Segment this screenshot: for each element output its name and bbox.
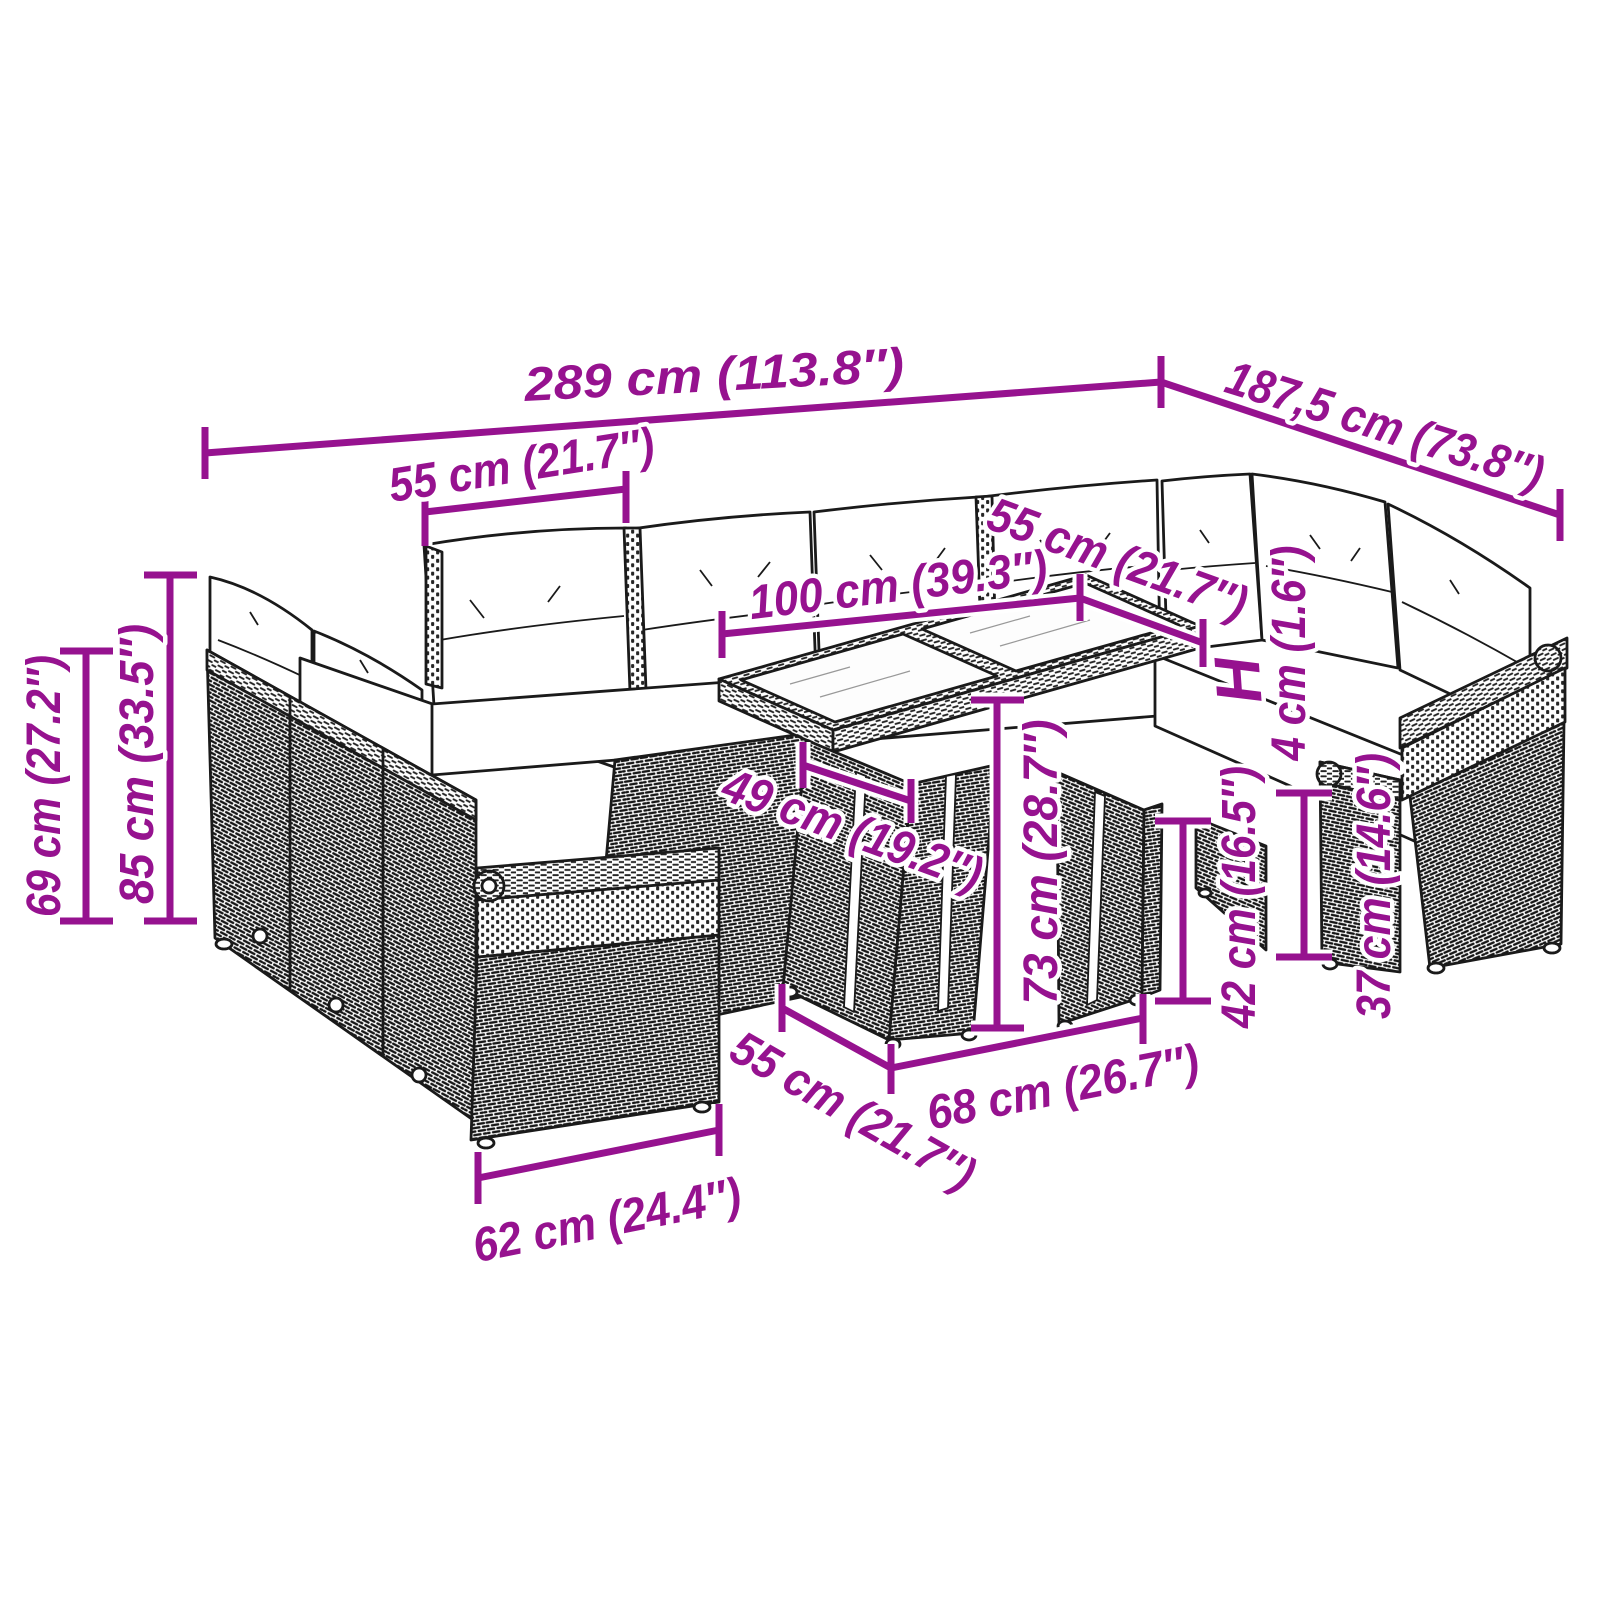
svg-text:4 cm (1.6″): 4 cm (1.6″) [1263,546,1316,762]
svg-text:73 cm (28.7″): 73 cm (28.7″) [1015,720,1068,1005]
svg-text:85 cm (33.5″): 85 cm (33.5″) [111,624,164,904]
svg-text:69 cm (27.2″): 69 cm (27.2″) [18,655,71,917]
svg-text:37 cm (14.6″): 37 cm (14.6″) [1348,753,1401,1019]
svg-text:42 cm (16.5″): 42 cm (16.5″) [1213,766,1266,1029]
